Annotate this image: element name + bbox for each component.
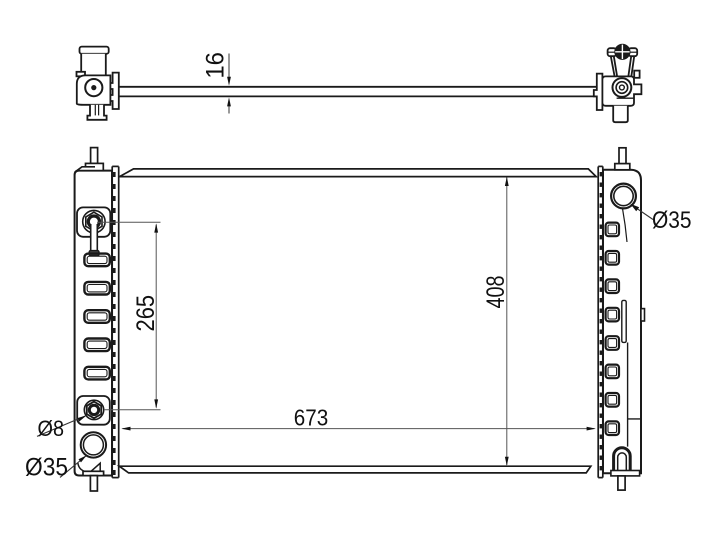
svg-text:Ø8: Ø8	[38, 416, 65, 441]
svg-text:673: 673	[294, 404, 329, 430]
svg-text:Ø35: Ø35	[25, 454, 68, 482]
svg-text:16: 16	[202, 52, 230, 79]
svg-text:265: 265	[132, 295, 160, 332]
svg-text:Ø35: Ø35	[652, 207, 692, 234]
svg-text:408: 408	[482, 276, 510, 309]
